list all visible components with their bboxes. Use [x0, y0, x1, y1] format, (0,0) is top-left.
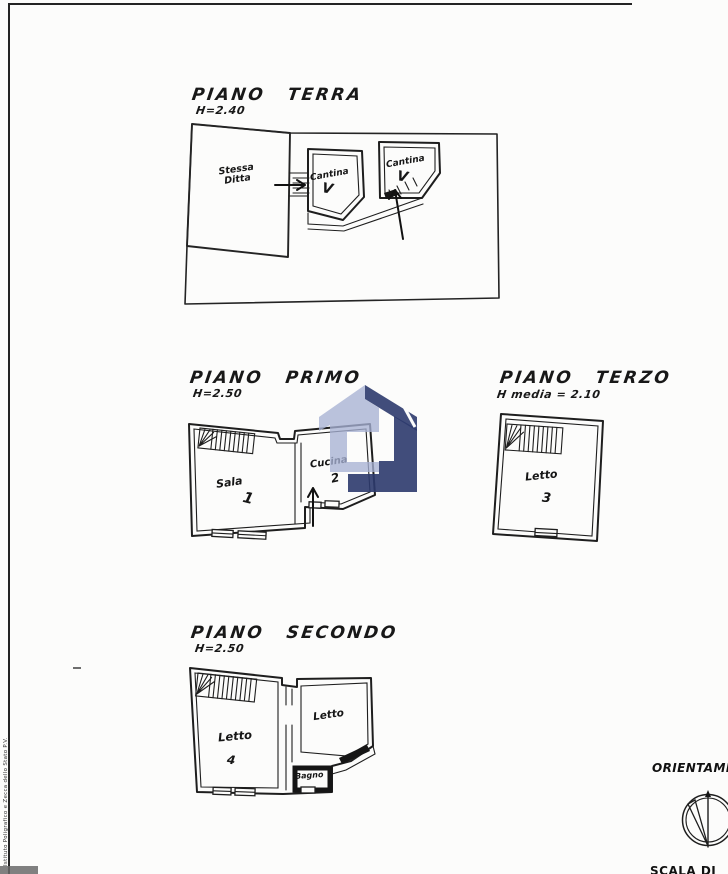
page-border-top	[8, 3, 632, 5]
floor-title-secondo: PIANO SECONDO	[190, 623, 399, 643]
stairs-icon	[505, 424, 563, 454]
room-label-letto-4: Letto	[217, 728, 252, 745]
orientation-label: ORIENTAMENTO	[652, 761, 728, 775]
printer-credit: Istituto Poligrafico e Zecca dello Stato…	[3, 737, 9, 866]
floorplan-sheet: Istituto Poligrafico e Zecca dello Stato…	[0, 0, 728, 874]
floor-height-terzo: H media = 2.10	[496, 388, 601, 401]
floor-height-primo: H=2.50	[192, 387, 243, 400]
floor-height-secondo: H=2.50	[194, 642, 245, 655]
scan-artifact-dash	[73, 667, 81, 669]
floor-title-terzo: PIANO TERZO	[499, 368, 673, 388]
compass-icon	[668, 780, 728, 860]
scale-label: SCALA DI	[650, 864, 716, 874]
floor-title-terra: PIANO TERRA	[191, 85, 364, 105]
stairs-icon	[196, 673, 257, 702]
stairs-icon	[198, 428, 255, 454]
scan-artifact-bottom-left	[0, 866, 38, 874]
plan-piano-secondo	[183, 662, 395, 810]
plan-piano-terzo	[487, 410, 617, 555]
watermark-logo	[318, 382, 420, 498]
plan-piano-terra	[175, 118, 515, 313]
stessa-ditta-outline	[187, 124, 290, 257]
floor-height-terra: H=2.40	[195, 104, 246, 117]
room-mark-letto-3: 3	[541, 491, 552, 507]
